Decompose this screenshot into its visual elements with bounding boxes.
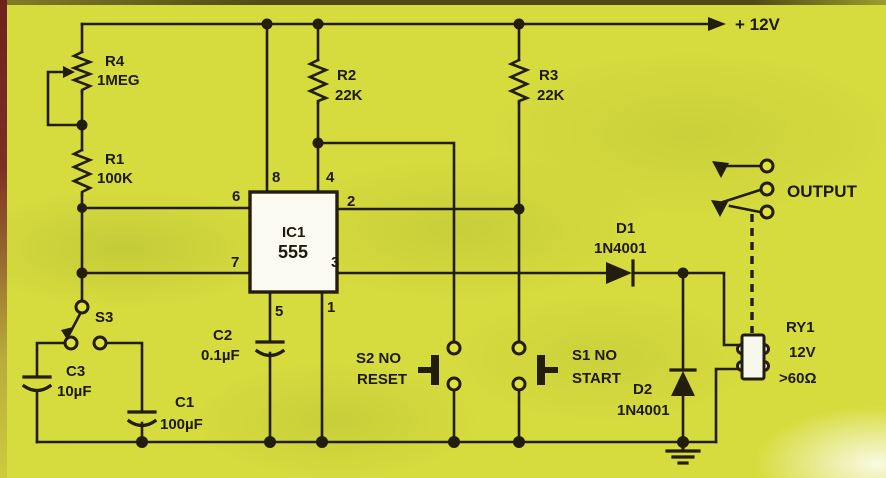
switch-terminal: [513, 342, 525, 354]
pin-4-label: 4: [326, 169, 335, 186]
r1-value: 100K: [97, 170, 133, 187]
pin-7-label: 7: [231, 254, 239, 271]
c1-value: 100µF: [160, 416, 203, 433]
s3-ref: S3: [95, 309, 113, 326]
pushbutton-s2-reset: S2 NO RESET: [356, 342, 460, 390]
cap-plate-curved: [24, 386, 50, 391]
resistor-r1: R1 100K: [74, 150, 133, 195]
relay-output-contacts: OUTPUT: [711, 160, 858, 218]
s1-ref: S1 NO: [572, 347, 617, 364]
contact-terminal: [761, 206, 773, 218]
pin-6-label: 6: [232, 188, 240, 205]
r2-ref: R2: [337, 67, 356, 84]
r3-ref: R3: [539, 67, 558, 84]
contact-terminal: [761, 183, 773, 195]
s2-ref: S2 NO: [356, 350, 401, 367]
r1-ref: R1: [105, 151, 124, 168]
switch-terminal: [448, 378, 460, 390]
r3-value: 22K: [537, 87, 565, 104]
s1-function: START: [572, 370, 621, 387]
switch-terminal: [448, 342, 460, 354]
ry1-ref: RY1: [786, 319, 815, 336]
pin-3-label: 3: [331, 254, 339, 271]
d2-ref: D2: [633, 381, 652, 398]
ic1-ref: IC1: [282, 224, 305, 241]
potentiometer-r4: R4 1MEG: [63, 52, 140, 92]
d1-ref: D1: [616, 220, 635, 237]
button-bar: [431, 355, 439, 385]
power-rail: + 12V: [708, 15, 781, 34]
button-stem: [418, 367, 431, 373]
ry1-voltage: 12V: [789, 344, 816, 361]
diode-triangle: [671, 371, 695, 396]
d1-value: 1N4001: [594, 240, 647, 257]
resistor-symbol: [511, 60, 527, 103]
contact-arrow-icon: [711, 200, 728, 217]
c2-value: 0.1µF: [201, 347, 240, 364]
r4-ref: R4: [105, 53, 125, 70]
ry1-resistance: >60Ω: [779, 370, 816, 387]
switch-s3: S3: [61, 301, 113, 349]
d2-value: 1N4001: [617, 402, 670, 419]
button-stem: [545, 367, 558, 373]
pin-1-label: 1: [327, 299, 335, 316]
output-label: OUTPUT: [787, 182, 858, 201]
c2-ref: C2: [213, 327, 232, 344]
resistor-r3: R3 22K: [511, 60, 565, 104]
switch-terminal: [76, 301, 88, 313]
coil-body: [742, 335, 764, 379]
capacitor-c1: C1 100µF: [129, 394, 203, 433]
pushbutton-s1-start: S1 NO START: [513, 342, 621, 390]
ic1-555-timer: IC1 555 8 4 6 7 2 3 5 1: [231, 169, 355, 320]
resistor-symbol: [74, 52, 90, 92]
pin-8-label: 8: [272, 169, 280, 186]
contact-arrow-icon: [712, 161, 729, 178]
button-bar: [537, 355, 545, 385]
switch-terminal: [65, 337, 77, 349]
r4-value: 1MEG: [97, 72, 140, 89]
switch-terminal: [94, 337, 106, 349]
c3-value: 10µF: [57, 383, 92, 400]
c3-ref: C3: [66, 363, 85, 380]
diode-d1: D1 1N4001: [594, 220, 647, 285]
ic1-value: 555: [278, 242, 308, 262]
pin-2-label: 2: [347, 193, 355, 210]
power-arrow-icon: [708, 17, 726, 31]
power-label: + 12V: [735, 15, 781, 34]
contact-terminal: [761, 160, 773, 172]
schematic-canvas: + 12V R4 1MEG R1 100K R2 22K R3 22K: [0, 0, 886, 478]
circuit-schematic: + 12V R4 1MEG R1 100K R2 22K R3 22K: [0, 0, 886, 478]
pin-5-label: 5: [275, 303, 283, 320]
r2-value: 22K: [335, 87, 363, 104]
diode-triangle: [606, 262, 632, 284]
resistor-symbol: [310, 60, 326, 103]
switch-terminal: [513, 378, 525, 390]
resistor-symbol: [74, 150, 90, 195]
s2-function: RESET: [357, 371, 407, 388]
c1-ref: C1: [175, 394, 194, 411]
resistor-r2: R2 22K: [310, 60, 363, 104]
relay-ry1-coil: RY1 12V >60Ω: [738, 214, 817, 387]
ground-icon: [667, 442, 699, 463]
capacitor-c3: C3 10µF: [24, 363, 92, 400]
